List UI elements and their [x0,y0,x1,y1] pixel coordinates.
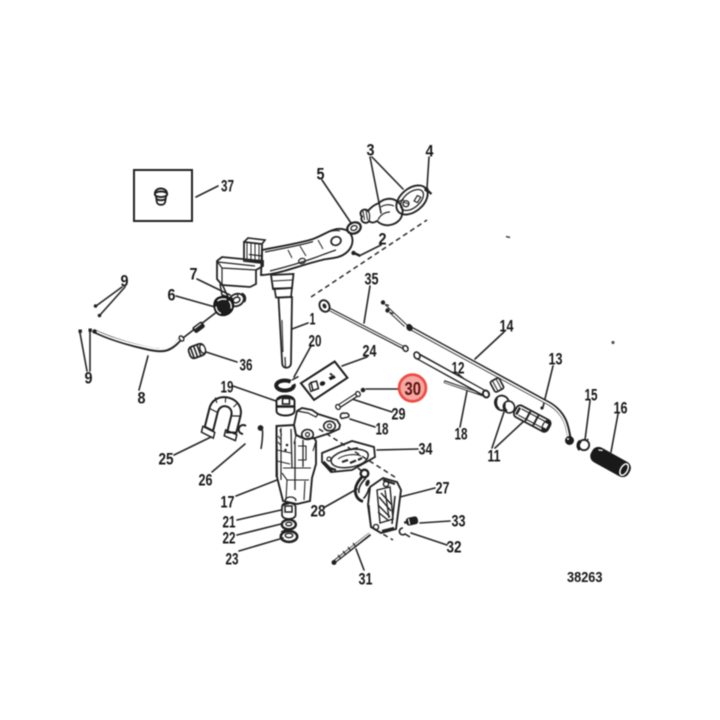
svg-text:30: 30 [405,378,422,399]
svg-text:9: 9 [121,272,129,291]
svg-text:29: 29 [392,405,406,424]
svg-text:4: 4 [426,142,434,161]
svg-text:15: 15 [585,386,598,405]
svg-text:1: 1 [310,310,316,329]
svg-text:35: 35 [365,270,379,289]
svg-text:33: 33 [452,512,466,531]
svg-text:38263: 38263 [567,569,603,586]
svg-text:22: 22 [223,529,236,548]
svg-text:23: 23 [226,550,239,569]
svg-text:25: 25 [159,450,174,469]
svg-text:28: 28 [311,502,326,521]
svg-text:20: 20 [309,332,322,351]
svg-text:32: 32 [447,538,462,557]
svg-text:5: 5 [317,165,325,184]
svg-text:26: 26 [199,471,213,490]
svg-text:9: 9 [85,369,93,388]
svg-text:3: 3 [367,141,375,160]
svg-text:6: 6 [168,286,176,305]
svg-text:16: 16 [614,399,628,418]
svg-text:34: 34 [419,440,433,459]
svg-text:8: 8 [138,389,146,408]
svg-text:14: 14 [500,317,514,336]
svg-text:24: 24 [363,342,377,361]
svg-text:31: 31 [359,570,373,589]
svg-text:18: 18 [455,425,468,444]
svg-text:11: 11 [488,447,501,466]
svg-text:18: 18 [376,420,389,439]
svg-text:13: 13 [549,350,563,369]
svg-text:36: 36 [240,356,253,375]
svg-text:7: 7 [190,265,198,284]
svg-text:37: 37 [221,177,234,196]
svg-text:17: 17 [221,493,235,512]
svg-text:19: 19 [221,378,234,397]
svg-text:12: 12 [452,359,465,378]
svg-text:2: 2 [379,230,387,249]
svg-text:27: 27 [436,479,450,498]
